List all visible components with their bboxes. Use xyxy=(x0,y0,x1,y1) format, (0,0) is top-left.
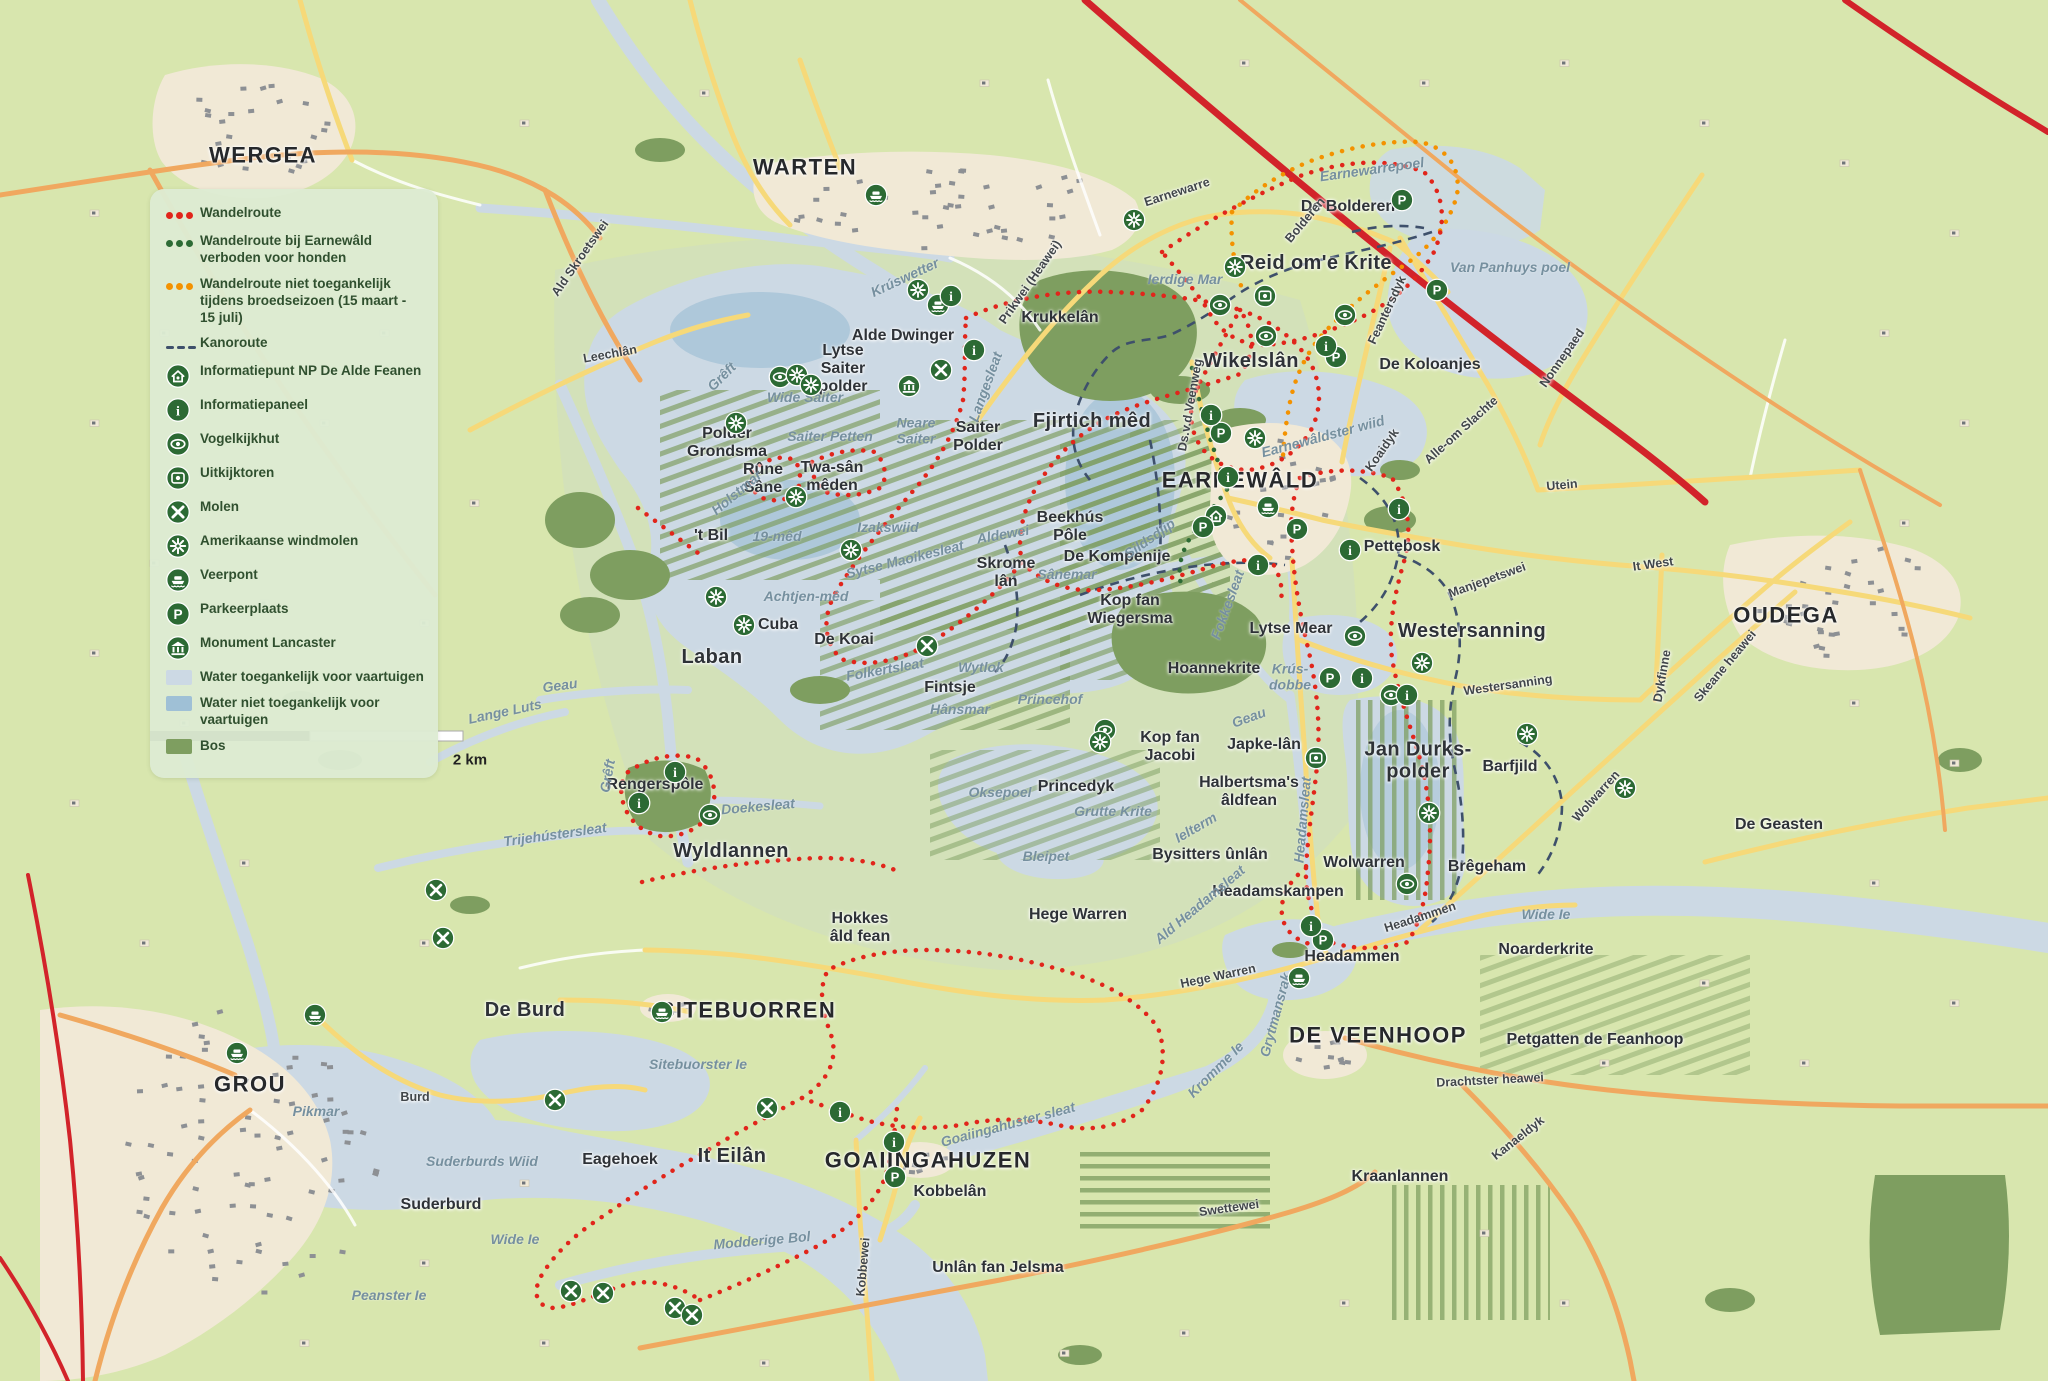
parking-icon: P xyxy=(166,602,190,626)
legend-item-label: Bos xyxy=(200,738,226,755)
legend-item-label: Informatiepunt NP De Alde Feanen xyxy=(200,363,421,380)
legend-key xyxy=(166,465,200,490)
legend-key xyxy=(166,233,200,252)
legend-item-label: Wandelroute niet toegankelijk tijdens br… xyxy=(200,276,424,327)
legend-key xyxy=(166,567,200,592)
legend-item: PParkeerplaats xyxy=(166,601,424,626)
legend-item-label: Water toegankelijk voor vaartuigen xyxy=(200,669,424,686)
legend-item-label: Wandelroute xyxy=(200,205,281,222)
map-legend: WandelrouteWandelroute bij Earnewâld ver… xyxy=(150,189,438,778)
legend-item: Veerpont xyxy=(166,567,424,592)
legend-item: Informatiepunt NP De Alde Feanen xyxy=(166,363,424,388)
legend-item-label: Amerikaanse windmolen xyxy=(200,533,358,550)
windmill-icon xyxy=(166,500,190,524)
legend-items: WandelrouteWandelroute bij Earnewâld ver… xyxy=(166,205,424,755)
legend-item: Vogelkijkhut xyxy=(166,431,424,456)
legend-item: Wandelroute xyxy=(166,205,424,224)
legend-key: P xyxy=(166,601,200,626)
scale-label: 2 km xyxy=(453,752,487,769)
legend-item: Uitkijktoren xyxy=(166,465,424,490)
legend-item: Kanoroute xyxy=(166,335,424,354)
legend-key xyxy=(166,533,200,558)
monument-icon xyxy=(166,636,190,660)
info-point-icon xyxy=(166,364,190,388)
park-map-canvas[interactable]: WandelrouteWandelroute bij Earnewâld ver… xyxy=(0,0,2048,1381)
legend-item-label: Monument Lancaster xyxy=(200,635,336,652)
legend-item-label: Informatiepaneel xyxy=(200,397,308,414)
legend-item-label: Parkeerplaats xyxy=(200,601,289,618)
legend-item-label: Uitkijktoren xyxy=(200,465,274,482)
info-panel-icon: i xyxy=(166,398,190,422)
legend-key xyxy=(166,695,200,711)
legend-key xyxy=(166,635,200,660)
legend-item: iInformatiepaneel xyxy=(166,397,424,422)
american-windmill-icon xyxy=(166,534,190,558)
legend-key xyxy=(166,738,200,754)
legend-item: Water toegankelijk voor vaartuigen xyxy=(166,669,424,686)
legend-item: Monument Lancaster xyxy=(166,635,424,660)
legend-key xyxy=(166,669,200,685)
legend-key xyxy=(166,205,200,224)
svg-text:i: i xyxy=(176,404,180,420)
legend-item: Molen xyxy=(166,499,424,524)
legend-key xyxy=(166,276,200,295)
svg-text:P: P xyxy=(173,607,182,622)
legend-item-label: Molen xyxy=(200,499,239,516)
watchtower-icon xyxy=(166,466,190,490)
legend-item-label: Veerpont xyxy=(200,567,258,584)
legend-key xyxy=(166,335,200,354)
legend-item: Wandelroute bij Earnewâld verboden voor … xyxy=(166,233,424,267)
legend-item-label: Water niet toegankelijk voor vaartuigen xyxy=(200,695,424,729)
legend-item-label: Kanoroute xyxy=(200,335,268,352)
legend-key xyxy=(166,431,200,456)
legend-key: i xyxy=(166,397,200,422)
legend-item-label: Vogelkijkhut xyxy=(200,431,279,448)
legend-item-label: Wandelroute bij Earnewâld verboden voor … xyxy=(200,233,424,267)
ferry-icon xyxy=(166,568,190,592)
bird-hide-icon xyxy=(166,432,190,456)
legend-item: Bos xyxy=(166,738,424,755)
legend-key xyxy=(166,363,200,388)
legend-item: Amerikaanse windmolen xyxy=(166,533,424,558)
legend-item: Wandelroute niet toegankelijk tijdens br… xyxy=(166,276,424,327)
legend-key xyxy=(166,499,200,524)
legend-item: Water niet toegankelijk voor vaartuigen xyxy=(166,695,424,729)
